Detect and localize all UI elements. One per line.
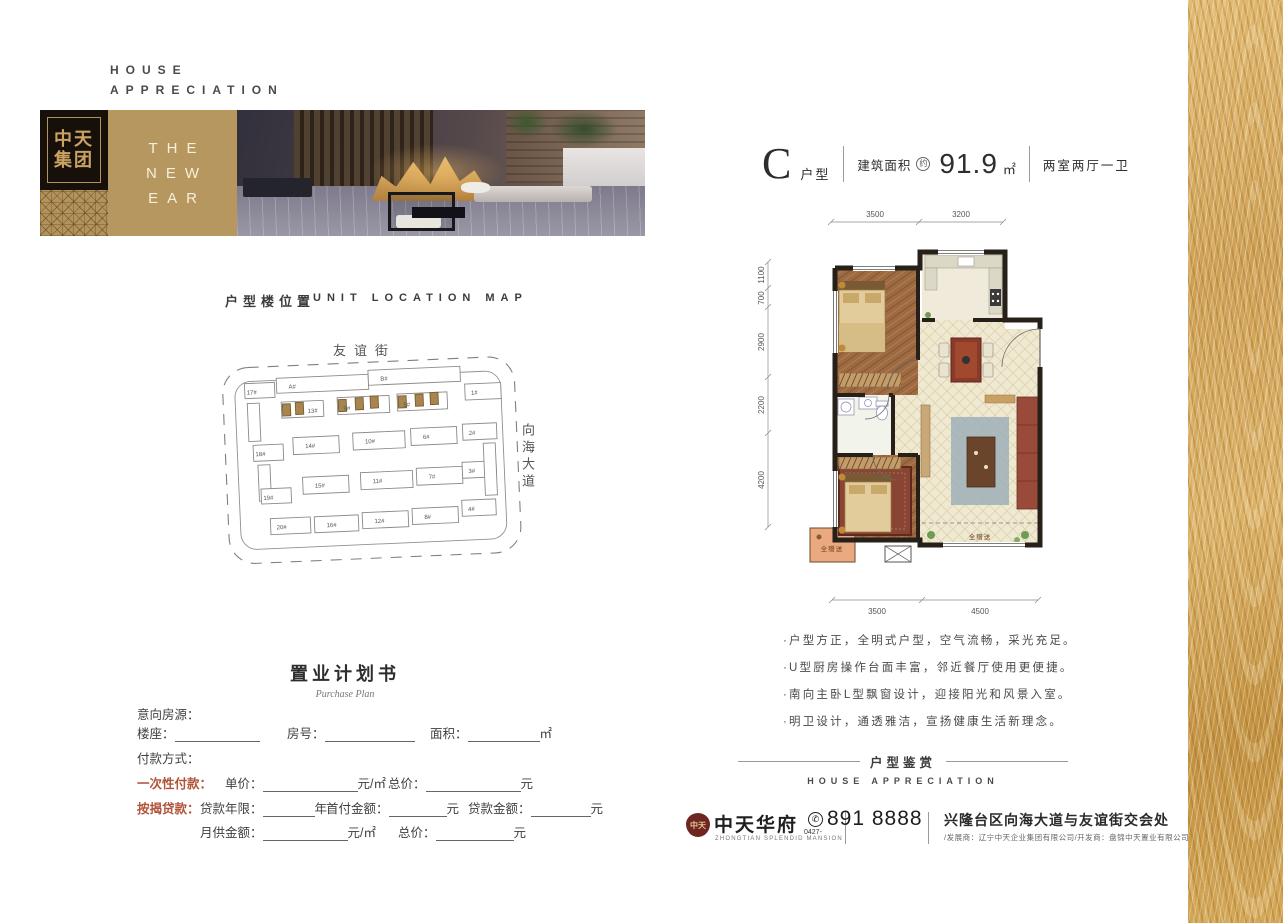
- dim-top-1: 3500: [866, 210, 884, 219]
- monthly-blank: [263, 827, 348, 841]
- building-label-1: 1#: [471, 391, 479, 397]
- building-blank: [175, 728, 260, 742]
- purchase-plan-title-cn: 置业计划书: [255, 660, 435, 686]
- field-building: 楼座：: [137, 723, 260, 742]
- building-label-3: 3#: [468, 469, 476, 475]
- header-line1: HOUSE: [110, 60, 284, 80]
- toilet: [877, 406, 888, 420]
- purchase-plan-title: 置业计划书 Purchase Plan: [255, 660, 435, 700]
- building-4: 4#: [462, 499, 497, 516]
- gold-texture-strip: [1188, 0, 1283, 923]
- total-label: 总价：: [388, 773, 426, 792]
- area-blank: [468, 728, 540, 742]
- gift-label-2: 全赠送: [969, 532, 992, 541]
- field-room: 房号：: [287, 723, 415, 742]
- gold-banner: THE NEW EAR: [108, 110, 237, 236]
- building-label-19: 19#: [263, 496, 274, 502]
- building-label-7: 7#: [429, 474, 437, 480]
- building-label-5: 5#: [403, 402, 411, 408]
- photo-table: [412, 207, 465, 218]
- building-12: 12#: [362, 511, 409, 529]
- purchase-plan-title-en: Purchase Plan: [255, 689, 435, 700]
- building-1: 1#: [465, 383, 502, 401]
- section-title-en: HOUSE APPRECIATION: [738, 776, 1068, 786]
- field-area: 面积： ㎡: [430, 723, 552, 742]
- area-field-label: 面积：: [430, 723, 468, 742]
- yuan-suffix: 元: [521, 773, 534, 792]
- per-sqm-suffix: 元/㎡: [358, 773, 386, 792]
- building-label-8: 8#: [424, 515, 432, 521]
- onetime-label: 一次性付款：: [137, 773, 212, 792]
- building-label-10: 10#: [365, 439, 376, 445]
- loan-years-label: 贷款年限：: [200, 798, 263, 817]
- map-title-en: UNIT LOCATION MAP: [313, 292, 528, 304]
- building-13: 13#: [281, 400, 324, 418]
- unit-price-blank: [263, 778, 358, 792]
- loan-amount-label: 贷款金额：: [468, 798, 531, 817]
- unit-type-label: 户型: [800, 164, 830, 183]
- brochure-page: HOUSE APPRECIATION 中天 集团 THE NEW EAR: [0, 0, 1283, 923]
- building-label-15: 15#: [315, 483, 326, 489]
- total-blank: [426, 778, 521, 792]
- building-16: 16#: [314, 515, 359, 533]
- room-blank: [325, 728, 415, 742]
- feature-4: ·明卫设计，通透雅洁，宣扬健康生活新理念。: [783, 709, 1077, 736]
- phone-area-code: 0427-: [804, 829, 822, 836]
- building-label-14: 14#: [305, 444, 316, 450]
- yuan-suffix: 元: [447, 798, 460, 817]
- building-8: 8#: [412, 507, 459, 525]
- building-label-6: 6#: [423, 435, 431, 441]
- building-label-16: 16#: [327, 523, 338, 529]
- field-unit-price: 单价： 元/㎡: [225, 773, 386, 792]
- mortgage-label: 按揭贷款：: [137, 798, 200, 817]
- dim-left-1: 1100: [757, 266, 766, 284]
- building-label-17: 17#: [247, 390, 258, 396]
- building-label: 楼座：: [137, 723, 175, 742]
- brand-seal-icon: 中天: [686, 813, 710, 837]
- building-slab-3: [483, 443, 497, 495]
- basin: [859, 397, 877, 409]
- footer-address: 兴隆台区向海大道与友谊街交会处: [944, 810, 1169, 830]
- loan-amount-blank: [531, 803, 591, 817]
- courtyard-photo: [237, 110, 645, 236]
- logo-text-line1: 中天: [54, 129, 94, 150]
- feature-3: ·南向主卧L型飘窗设计，迎接阳光和风景入室。: [783, 682, 1077, 709]
- header-line2: APPRECIATION: [110, 80, 284, 100]
- site-map: A# B# 1# 17# 18# 19#: [212, 352, 542, 577]
- building-label-4: 4#: [468, 507, 476, 513]
- divider: [843, 146, 844, 182]
- building-a: A#: [276, 374, 369, 393]
- total-label: 总价：: [398, 822, 436, 841]
- unit-letter: C: [762, 142, 791, 186]
- photo-pillow: [461, 182, 490, 193]
- building-11: 11#: [360, 470, 413, 489]
- building-label-11: 11#: [373, 479, 383, 485]
- building-15: 15#: [303, 475, 350, 494]
- washer: [838, 399, 854, 415]
- building-label-a: A#: [288, 384, 296, 390]
- dim-bottom-2: 4500: [971, 607, 989, 616]
- footer-companies: /发展商：辽宁中天企业集团有限公司/开发商：盘锦中天置业有限公司: [944, 832, 1189, 843]
- dim-left-3: 2900: [757, 333, 766, 351]
- area-value: 91.9: [939, 148, 998, 180]
- field-loan-amount: 贷款金额： 元: [468, 798, 603, 817]
- stove: [990, 289, 1001, 306]
- building-label-18: 18#: [255, 452, 266, 458]
- area-group: 建筑面积 约 91.9 ㎡: [857, 148, 1016, 180]
- divider: [1029, 146, 1030, 182]
- per-sqm-suffix: 元/㎡: [348, 822, 376, 841]
- building-label-12: 12#: [374, 519, 385, 525]
- field-total-2: 总价： 元: [398, 822, 526, 841]
- feature-2: ·U型厨房操作台面丰富，邻近餐厅使用更便捷。: [783, 655, 1077, 682]
- building-6: 6#: [410, 426, 457, 445]
- field-monthly: 月供金额： 元/㎡: [200, 822, 376, 841]
- section-footer: 户型鉴赏 HOUSE APPRECIATION: [738, 752, 1068, 786]
- divider-line: [946, 761, 1068, 762]
- building-9: 9#: [337, 395, 390, 414]
- footer-brand-en: ZHONGTIAN SPLENDID MANSION: [715, 836, 843, 842]
- floor-plan: 3500 3200 1100 700 2900 2200 4200 3500 4…: [755, 205, 1070, 620]
- wardrobe-2: [839, 457, 901, 469]
- unit-features: ·户型方正，全明式户型，空气流畅，采光充足。 ·U型厨房操作台面丰富，邻近餐厅使…: [783, 628, 1077, 736]
- field-loan-years: 贷款年限： 年: [200, 798, 327, 817]
- section-title-cn: 户型鉴赏: [870, 752, 936, 771]
- yuan-suffix: 元: [591, 798, 604, 817]
- page-header: HOUSE APPRECIATION: [110, 60, 284, 100]
- banner-line2: NEW: [137, 161, 208, 186]
- footer-divider: [928, 812, 929, 844]
- building-18: 18#: [253, 444, 284, 461]
- gift-label-1: 全赠送: [821, 544, 844, 553]
- lattice-pattern-icon: [40, 190, 108, 236]
- building-17: 17#: [244, 382, 275, 398]
- loan-years-blank: [263, 803, 315, 817]
- kitchen-sink: [958, 257, 974, 266]
- photo-sofa: [243, 178, 312, 197]
- ac-platform: [885, 546, 911, 562]
- down-payment-blank: [389, 803, 447, 817]
- console-shelf: [985, 395, 1015, 403]
- coffee-table: [967, 437, 995, 487]
- building-2: 2#: [462, 423, 497, 440]
- building-5: 5#: [397, 392, 448, 411]
- banner-line1: THE: [140, 136, 206, 161]
- dim-left-5: 4200: [757, 471, 766, 489]
- seal-text: 中天: [690, 820, 706, 831]
- building-label-2: 2#: [469, 431, 477, 437]
- unit-header: C 户型 建筑面积 约 91.9 ㎡ 两室两厅一卫: [762, 138, 1130, 190]
- building-b: B#: [368, 366, 461, 385]
- payment-label: 付款方式：: [137, 748, 200, 767]
- field-down-payment: 首付金额： 元: [326, 798, 459, 817]
- unit-price-label: 单价：: [225, 773, 263, 792]
- intent-label: 意向房源：: [137, 704, 200, 723]
- building-label-13: 13#: [308, 409, 319, 415]
- logo-frame: 中天 集团: [47, 117, 101, 183]
- building-7: 7#: [416, 466, 463, 485]
- unit-rooms: 两室两厅一卫: [1043, 155, 1130, 174]
- footer-brand: 中天华府: [714, 810, 798, 837]
- photo-daybed: [474, 186, 592, 202]
- dim-bottom-1: 3500: [868, 607, 886, 616]
- phone-number: 891 8888: [827, 807, 923, 831]
- building-label-20: 20#: [277, 525, 288, 531]
- building-label-9: 9#: [343, 406, 351, 412]
- monthly-label: 月供金额：: [200, 822, 263, 841]
- map-title-cn: 户型楼位置: [225, 291, 315, 310]
- logo-text-line2: 集团: [54, 150, 94, 171]
- second-bedroom-furniture: [839, 457, 912, 535]
- building-19: 19#: [261, 488, 292, 504]
- dim-left-2: 700: [757, 291, 766, 305]
- room-label: 房号：: [287, 723, 325, 742]
- building-20: 20#: [270, 517, 311, 535]
- area-suffix: ㎡: [540, 723, 553, 742]
- brand-logo-block: 中天 集团: [40, 110, 108, 236]
- banner-line3: EAR: [139, 186, 206, 211]
- building-14: 14#: [293, 436, 340, 455]
- building-10: 10#: [353, 431, 406, 450]
- total-blank-2: [436, 827, 514, 841]
- divider-line: [738, 761, 860, 762]
- area-label: 建筑面积: [857, 155, 911, 174]
- phone-icon: ✆: [808, 812, 823, 827]
- area-approx-badge: 约: [916, 157, 930, 171]
- down-payment-label: 首付金额：: [326, 798, 389, 817]
- feature-1: ·户型方正，全明式户型，空气流畅，采光充足。: [783, 628, 1077, 655]
- tv-cabinet: [921, 405, 930, 477]
- dim-left-4: 2200: [757, 396, 766, 414]
- dim-top-2: 3200: [952, 210, 970, 219]
- yuan-suffix: 元: [514, 822, 527, 841]
- field-total-1: 总价： 元: [388, 773, 533, 792]
- building-label-b: B#: [380, 376, 388, 382]
- building-slab-1: [247, 403, 261, 441]
- logo-dark-panel: 中天 集团: [40, 110, 108, 190]
- area-unit: ㎡: [1003, 159, 1016, 178]
